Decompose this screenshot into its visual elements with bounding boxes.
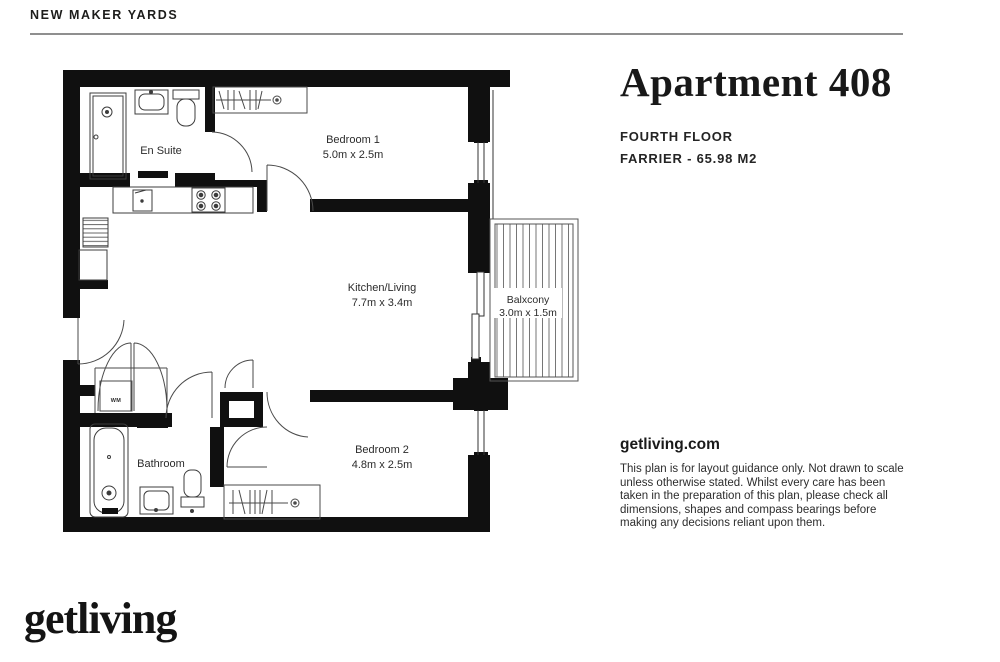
bathroom-fixtures [90, 424, 204, 517]
project-name: NEW MAKER YARDS [30, 8, 178, 22]
bathroom-door-arc [227, 427, 267, 467]
bathroom-sink [140, 487, 173, 514]
bedroom2-label: Bedroom 2 [355, 444, 409, 456]
title-block: Apartment 408 FOURTH FLOOR FARRIER - 65.… [620, 60, 920, 166]
wm-label: WM [111, 398, 122, 404]
bathroom-label: Bathroom [137, 458, 185, 470]
wm-door-right-arc [134, 343, 167, 411]
walls [63, 70, 510, 532]
bedroom1-label: Bedroom 1 [326, 134, 380, 146]
website-link: getliving.com [620, 436, 720, 454]
floorplan-page: NEW MAKER YARDS [0, 0, 1000, 662]
balcony-dimensions: 3.0m x 1.5m [499, 307, 557, 319]
washing-machine [100, 381, 132, 411]
hob [192, 188, 225, 212]
shower [90, 93, 126, 179]
utility-vent [83, 218, 108, 247]
ensuite-toilet [173, 90, 199, 126]
hall-door-arc [166, 372, 212, 418]
kitchen-living-dimensions: 7.7m x 3.4m [352, 297, 413, 309]
wardrobe-bedroom1 [213, 87, 307, 113]
balcony-label: Balxcony [507, 294, 550, 306]
unit-type-area-label: FARRIER - 65.98 M2 [620, 151, 920, 166]
ensuite-sink [135, 90, 168, 114]
kitchen-living-label: Kitchen/Living [348, 282, 417, 294]
bathroom-toilet [181, 470, 204, 513]
bathtub [90, 424, 128, 517]
utility-cupboard [79, 250, 107, 280]
getliving-logo: getliving [24, 593, 176, 644]
kitchen-counter [113, 187, 253, 213]
bedroom1-dimensions: 5.0m x 2.5m [323, 149, 384, 161]
floor-plan-drawing: En Suite Bedroom 1 5.0m x 2.5m Kitchen/L… [55, 60, 585, 540]
service-duct [229, 401, 254, 418]
disclaimer-text: This plan is for layout guidance only. N… [620, 463, 912, 531]
hanging-clothes [233, 490, 272, 514]
bedroom2-door-arc [267, 392, 308, 437]
ensuite-door-arc [212, 132, 252, 172]
kitchen-fixtures [79, 187, 253, 280]
kitchen-sink [133, 190, 152, 211]
balcony-sliding-door [472, 272, 484, 359]
header-divider [30, 33, 903, 35]
ensuite-fixtures [90, 90, 199, 179]
apartment-title: Apartment 408 [620, 60, 920, 104]
ensuite-label: En Suite [140, 145, 182, 157]
floor-label: FOURTH FLOOR [620, 129, 920, 144]
bedroom1-door-arc [267, 165, 313, 211]
hall-door-2-arc [225, 360, 253, 388]
entry-door-arc [78, 318, 124, 364]
wardrobe-bedroom2 [224, 485, 320, 519]
bedroom2-dimensions: 4.8m x 2.5m [352, 459, 413, 471]
